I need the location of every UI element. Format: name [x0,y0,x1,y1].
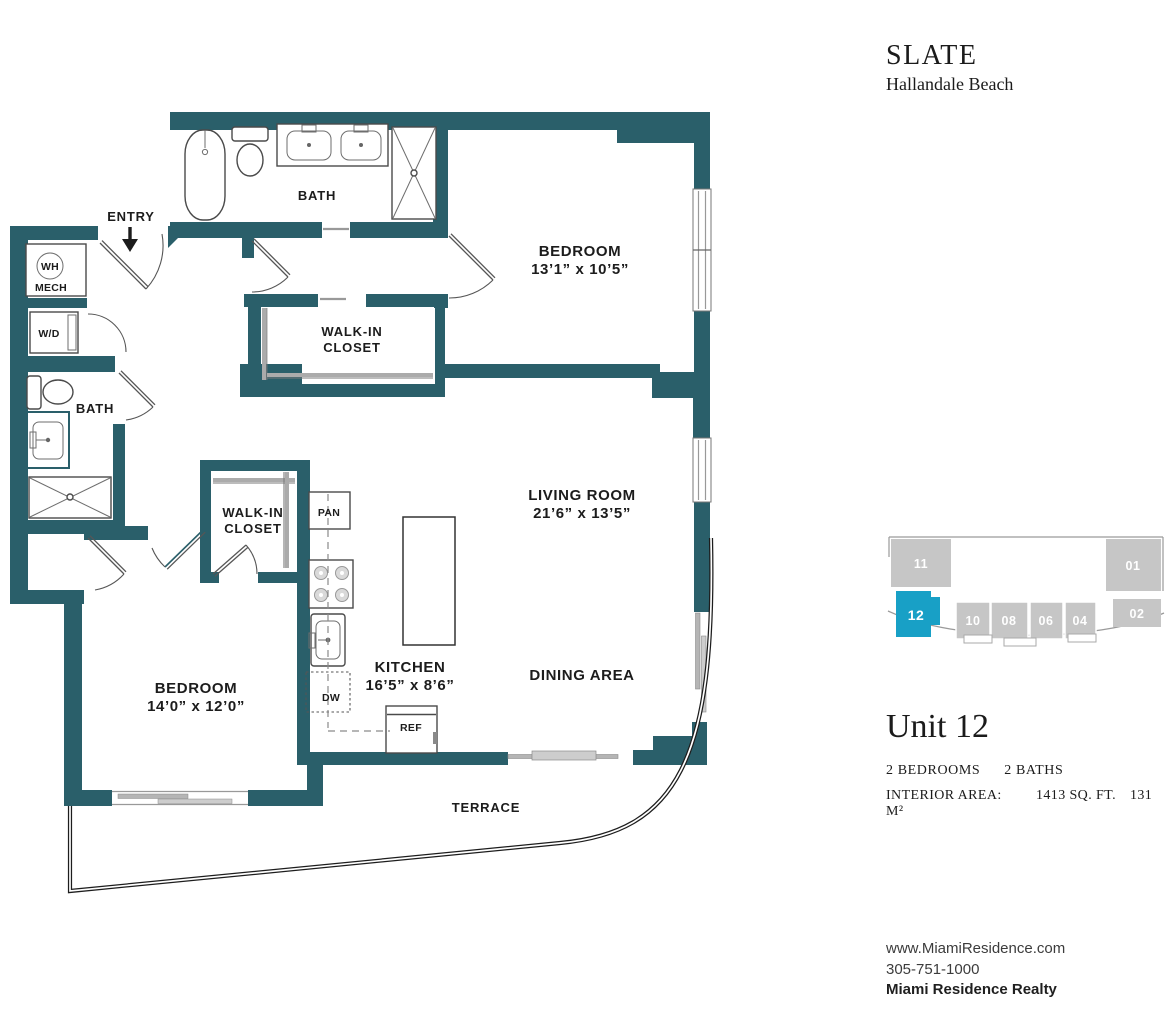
entry-label: ENTRY [107,209,155,224]
unit-bedrooms: 2 BEDROOMS [886,763,980,778]
shower-upper [392,127,436,219]
entry-arrow-icon [122,227,138,252]
area-sqft: 1413 SQ. FT. [1036,788,1116,803]
double-vanity [277,124,388,166]
kitchen-sink [309,614,345,666]
closet-lower-door [213,545,257,576]
bedroom-lower-label: BEDROOM [155,680,238,697]
unit-info: Unit 12 2 BEDROOMS2 BATHS INTERIOR AREA:… [886,708,1166,820]
key-plan: 11 01 12 10 08 06 04 02 [886,531,1166,657]
contact-info: www.MiamiResidence.com 305-751-1000 Miam… [886,939,1065,1001]
unit-name: Unit 12 [886,708,1166,746]
toilet-upper [232,127,268,176]
laundry-door-arc [88,314,126,352]
bedroom-upper-dims: 13’1” x 10’5” [531,261,629,278]
kitchen-island [403,517,455,645]
website: www.MiamiResidence.com [886,939,1065,960]
key-unit-02: 02 [1130,607,1145,621]
property-title: SLATE [886,40,1013,72]
key-unit-08: 08 [1002,614,1017,628]
closet-upper-label-2: CLOSET [323,340,381,355]
ref-label: REF [400,722,422,734]
key-unit-04: 04 [1073,614,1088,628]
closet-lower-label-1: WALK-IN [222,505,283,520]
living-label: LIVING ROOM [528,487,635,504]
closet-upper-label-1: WALK-IN [321,324,382,339]
key-unit-11: 11 [914,557,928,571]
bedroom-lower-door [88,536,126,590]
key-unit-10: 10 [966,614,981,628]
closet-lower-label-2: CLOSET [224,521,282,536]
wh-label: WH [41,261,59,273]
floor-plan: ENTRY BATH BEDROOM 13’1” x 10’5” WALK-IN… [0,0,1166,1020]
mech-label: MECH [35,282,67,294]
wd-label: W/D [38,328,59,340]
bathtub [185,130,225,220]
living-dims: 21’6” x 13’5” [533,505,631,522]
key-unit-06: 06 [1039,614,1054,628]
terrace-label: TERRACE [452,800,520,815]
window-bedroom-lower [112,790,248,806]
hall-door [252,239,290,292]
hall-door-lower [152,530,205,569]
key-unit-01: 01 [1126,559,1141,573]
bedroom-upper-label: BEDROOM [539,243,622,260]
pantry-label: PAN [318,507,340,519]
property-subtitle: Hallandale Beach [886,74,1013,95]
bath-lower-door [119,371,155,420]
phone: 305-751-1000 [886,960,1065,981]
window-bedroom-upper [693,189,711,311]
key-unit-12: 12 [908,607,925,623]
bath-upper-label: BATH [298,188,336,203]
bedroom-upper-door [449,234,495,298]
bath-lower-label: BATH [76,401,114,416]
stove [309,560,353,608]
vanity-lower [27,412,69,468]
branding: SLATE Hallandale Beach [886,40,1013,95]
dining-label: DINING AREA [529,667,634,684]
toilet-lower [27,376,73,409]
company-name: Miami Residence Realty [886,980,1065,1001]
dw-label: DW [322,692,340,704]
unit-baths: 2 BATHS [1004,763,1063,778]
key-plan-units: 11 01 12 10 08 06 04 02 [891,539,1161,646]
shower-lower [29,477,111,518]
kitchen-dims: 16’5” x 8’6” [366,677,455,694]
bedroom-lower-dims: 14’0” x 12’0” [147,698,245,715]
sliding-door-terrace [508,751,618,760]
window-living [693,438,711,502]
interior-area-label: INTERIOR AREA: [886,788,1036,804]
floorplan-sheet: ENTRY BATH BEDROOM 13’1” x 10’5” WALK-IN… [0,0,1166,1020]
kitchen-label: KITCHEN [375,659,446,676]
